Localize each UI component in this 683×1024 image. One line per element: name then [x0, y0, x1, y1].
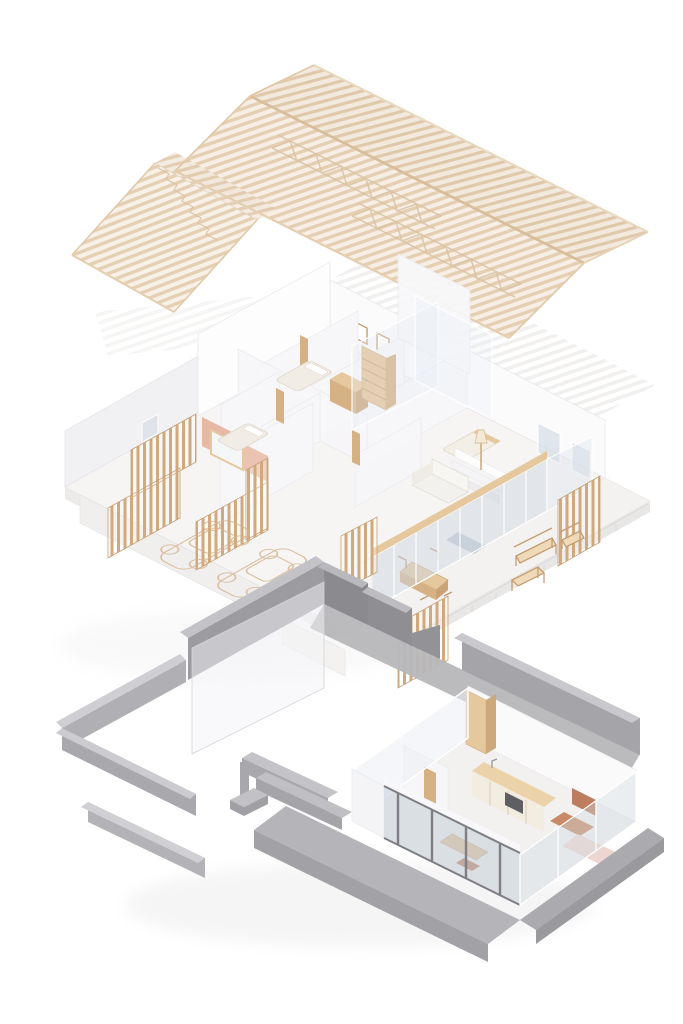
exploded-axonometric-drawing: Exploded axonometric architectural diagr…	[0, 0, 683, 1024]
ground-column	[240, 762, 249, 796]
ground-footing-walls	[56, 654, 205, 878]
garage-divider-screen	[246, 458, 268, 540]
architectural-illustration: Exploded axonometric architectural diagr…	[0, 0, 683, 1024]
